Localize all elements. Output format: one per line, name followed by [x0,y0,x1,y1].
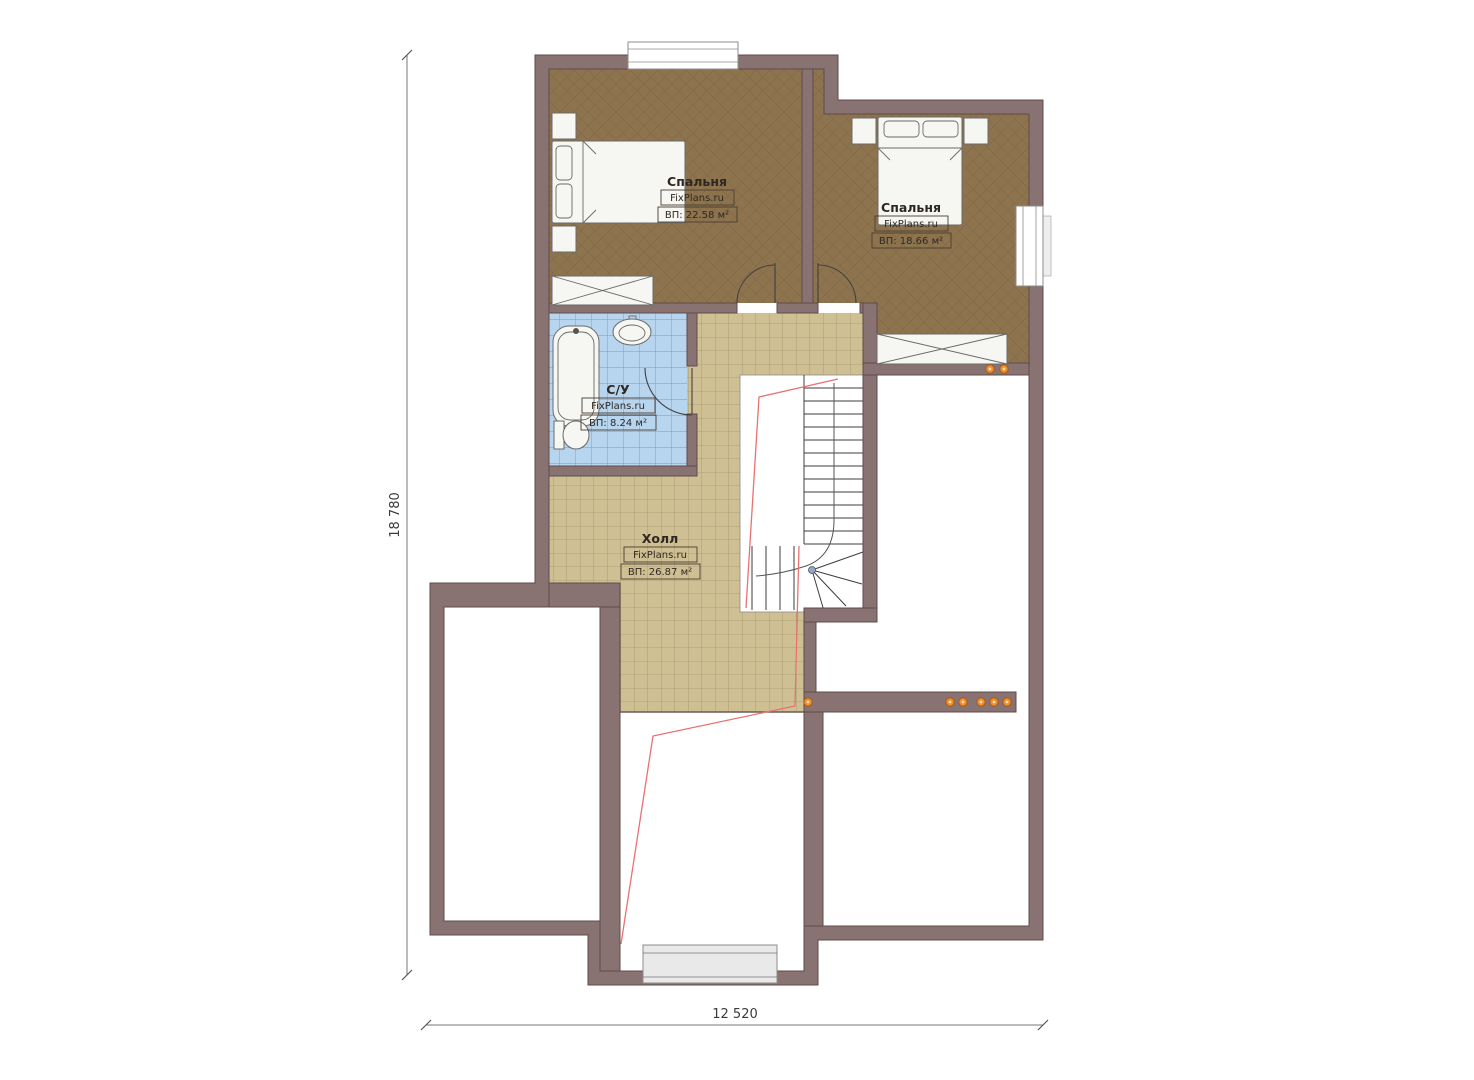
nightstand [964,118,988,144]
wall-hall-top-mid [777,303,818,313]
room-area: ВП: 8.24 м² [589,418,647,429]
dimension-value-vertical: 18 780 [388,492,403,538]
window-right [1016,206,1051,286]
wall-stub [804,622,816,692]
nightstand [552,113,576,139]
room-area: ВП: 26.87 м² [628,567,692,578]
room-name: С/У [606,382,630,397]
wall-wing-top [549,583,620,607]
wall-right-divider-vertical [804,712,823,926]
dimension-vertical: 18 780 [388,50,412,980]
brand-watermark: FixPlans.ru [591,401,645,412]
room-area: ВП: 22.58 м² [665,210,729,221]
wall-bedroom-divider [802,69,813,303]
window-top [628,42,738,69]
brand-watermark: FixPlans.ru [633,550,687,561]
toilet [554,421,589,449]
brand-watermark: FixPlans.ru [670,193,724,204]
nightstand [852,118,876,144]
dimension-horizontal: 12 520 [421,1007,1048,1030]
nightstand [552,226,576,252]
wall-bathroom-right-lower [687,414,697,466]
wall-bathroom-bottom [549,466,697,476]
wall-bathroom-right-upper [687,313,697,366]
dimension-value-horizontal: 12 520 [712,1007,758,1022]
orange-marker-icon [977,698,1011,706]
wardrobe-2 [877,334,1007,364]
stair-hub-marker [809,567,816,574]
wardrobe-1 [552,276,653,305]
wall-wing-right [600,607,620,971]
brand-watermark: FixPlans.ru [884,219,938,230]
room-name: Спальня [667,174,727,189]
room-name: Холл [642,531,679,546]
room-area: ВП: 18.66 м² [879,236,943,247]
orange-marker-icon [804,698,812,706]
floor-plan-page: Спальня FixPlans.ru ВП: 22.58 м² Спальня… [0,0,1474,1080]
faucet-icon [573,328,579,334]
wall-stair-bottom [804,608,877,622]
window-bottom [643,945,777,983]
wall-stair-right [863,303,877,622]
floor-plan-canvas: Спальня FixPlans.ru ВП: 22.58 м² Спальня… [0,0,1474,1080]
room-name: Спальня [881,200,941,215]
